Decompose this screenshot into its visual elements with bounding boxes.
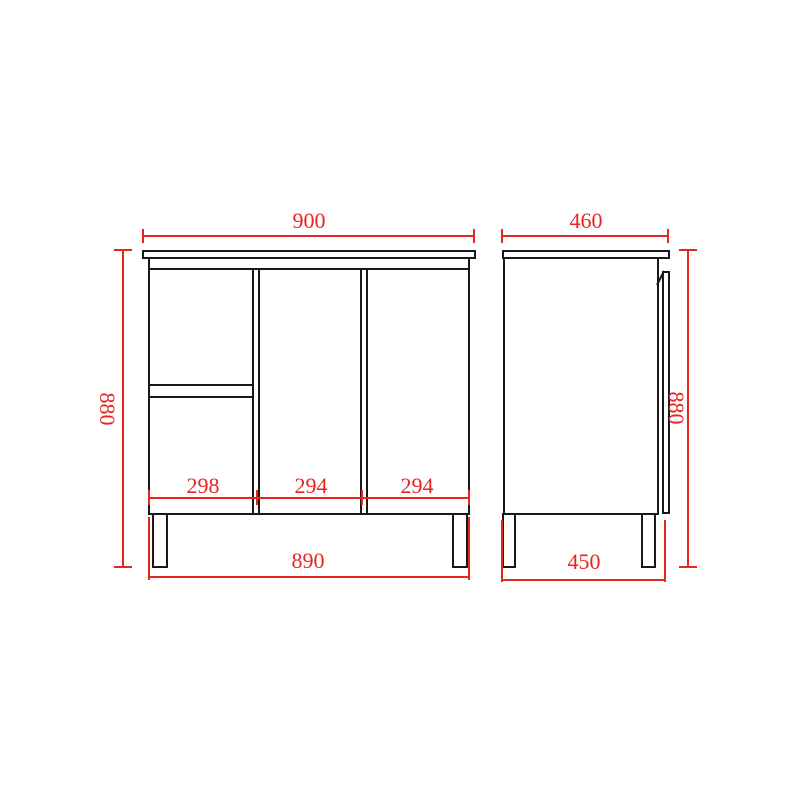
dim-line-460 [502, 235, 669, 237]
drawer-divider-line [150, 384, 252, 386]
front-divider-line [360, 269, 362, 514]
dim-tick [473, 229, 475, 243]
extension-line [664, 520, 666, 582]
dim-line-900 [143, 235, 475, 237]
extension-line [468, 517, 470, 580]
side-left-leg [502, 513, 516, 568]
dim-line-450 [502, 579, 666, 581]
front-divider-line [258, 269, 260, 514]
dim-tick [679, 249, 697, 251]
dim-tick [148, 490, 150, 505]
dim-tick [679, 566, 697, 568]
door-bevel-notch-icon [653, 269, 667, 287]
side-cabinet-body [503, 257, 659, 515]
front-left-leg [152, 513, 168, 568]
dim-label-294-right: 294 [401, 475, 434, 497]
dim-tick [142, 229, 144, 243]
dim-label-294-middle: 294 [295, 475, 328, 497]
dimension-drawing: 900 460 880 880 298 294 294 890 [0, 0, 800, 800]
dim-tick [361, 490, 363, 505]
dim-tick [114, 249, 132, 251]
dim-line-890 [149, 576, 469, 578]
dim-tick [667, 229, 669, 243]
dim-tick [501, 229, 503, 243]
extension-line [501, 520, 503, 582]
front-divider-line [366, 269, 368, 514]
drawer-divider-line [150, 396, 252, 398]
dim-tick [468, 490, 470, 505]
dim-line-880-left [122, 250, 124, 568]
extension-line [148, 517, 150, 580]
dim-label-460: 460 [570, 210, 603, 232]
dim-tick [114, 566, 132, 568]
dim-label-880-right: 880 [665, 392, 687, 425]
dim-label-890: 890 [292, 550, 325, 572]
dim-label-880-left: 880 [96, 393, 118, 426]
front-top-rail-line [150, 268, 468, 270]
dim-tick [256, 490, 258, 505]
dim-label-298: 298 [187, 475, 220, 497]
dim-label-450: 450 [568, 551, 601, 573]
front-right-leg [452, 513, 468, 568]
front-divider-line [252, 269, 254, 514]
dim-label-900: 900 [293, 210, 326, 232]
side-right-leg [641, 513, 656, 568]
